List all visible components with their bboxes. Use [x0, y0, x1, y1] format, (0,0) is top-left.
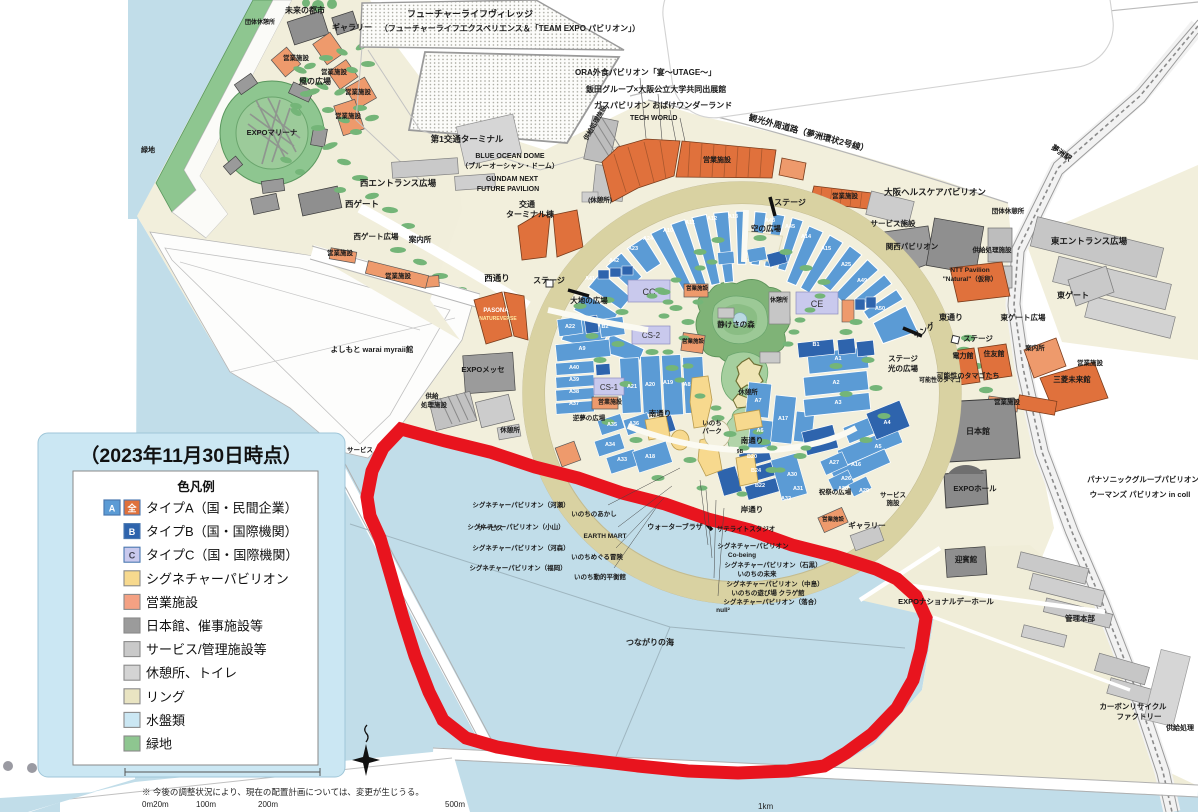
svg-text:水盤類: 水盤類 [146, 713, 185, 728]
svg-text:ギャラリー: ギャラリー [332, 22, 372, 32]
svg-text:シグネチャーパビリオン（福岡）: シグネチャーパビリオン（福岡） [469, 563, 566, 572]
svg-text:（ブルーオーシャン・ドーム）: （ブルーオーシャン・ドーム） [461, 161, 559, 170]
svg-text:ステージ: ステージ [963, 334, 993, 343]
svg-text:B22: B22 [755, 483, 765, 489]
svg-text:東ゲート広場: 東ゲート広場 [1001, 312, 1046, 322]
svg-text:住友館: 住友館 [984, 349, 1005, 358]
svg-text:A31: A31 [793, 486, 803, 492]
svg-text:サービス/管理施設等: サービス/管理施設等 [146, 642, 267, 657]
svg-text:A36: A36 [629, 421, 639, 427]
svg-text:A4: A4 [883, 420, 891, 426]
svg-text:100m: 100m [196, 800, 216, 809]
svg-text:（2023年11月30日時点）: （2023年11月30日時点） [80, 444, 302, 467]
svg-text:500m: 500m [445, 800, 465, 809]
svg-text:シグネチャーパビリオン（河森）: シグネチャーパビリオン（河森） [472, 543, 569, 552]
svg-text:EARTH MART: EARTH MART [584, 533, 627, 540]
svg-text:A9: A9 [578, 346, 585, 352]
svg-text:営業施設: 営業施設 [321, 67, 348, 76]
svg-text:サービス: サービス [347, 445, 373, 454]
svg-text:1km: 1km [758, 802, 773, 811]
svg-text:いのちのあかし: いのちのあかし [571, 509, 617, 518]
svg-text:Co-being: Co-being [728, 552, 756, 559]
svg-text:施設: 施設 [887, 498, 901, 507]
svg-text:ガスパビリオン おばけワンダーランド: ガスパビリオン おばけワンダーランド [594, 100, 732, 110]
svg-text:A39: A39 [569, 377, 579, 383]
svg-text:シグネチャーパビリオン（河瀬）: シグネチャーパビリオン（河瀬） [472, 500, 569, 509]
svg-text:シグネチャーパビリオン: シグネチャーパビリオン [146, 571, 289, 586]
svg-text:ステージ: ステージ [533, 276, 565, 285]
svg-text:EXPOマリーナ: EXPOマリーナ [247, 128, 298, 137]
svg-text:A35: A35 [607, 422, 617, 428]
svg-text:いのち: いのち [702, 419, 722, 427]
svg-text:A26: A26 [841, 476, 851, 482]
svg-text:供給処理施設: 供給処理施設 [972, 245, 1013, 254]
svg-text:A20: A20 [645, 382, 655, 388]
svg-text:飯田グループ×大阪公立大学共同出展館: 飯田グループ×大阪公立大学共同出展館 [585, 84, 726, 94]
svg-text:ギャラリー: ギャラリー [848, 520, 886, 530]
svg-text:B: B [129, 527, 136, 537]
svg-text:A37: A37 [569, 401, 579, 407]
svg-text:管理本部: 管理本部 [1065, 613, 1095, 623]
svg-text:可能性のタマゴ: 可能性のタマゴ [919, 376, 961, 384]
svg-text:A8: A8 [683, 382, 690, 388]
svg-text:営業施設: 営業施設 [335, 111, 362, 120]
svg-text:風の広場: 風の広場 [299, 76, 331, 86]
svg-text:営業施設: 営業施設 [703, 155, 732, 164]
svg-text:営業施設: 営業施設 [822, 515, 845, 523]
svg-text:A42: A42 [609, 258, 619, 264]
svg-text:null²: null² [716, 607, 731, 614]
svg-text:サテライトスタジオ: サテライトスタジオ [717, 524, 776, 533]
svg-text:処理施設: 処理施設 [420, 400, 448, 409]
svg-text:南通り: 南通り [649, 408, 672, 418]
svg-text:シグネチャーパビリオン: シグネチャーパビリオン [717, 541, 789, 550]
svg-text:A3: A3 [834, 400, 841, 406]
svg-text:タイプA（国・民間企業）: タイプA（国・民間企業） [146, 501, 298, 516]
svg-text:大阪ヘルスケアパビリオン: 大阪ヘルスケアパビリオン [884, 187, 986, 197]
svg-text:いのちの遊び場 クラゲ館: いのちの遊び場 クラゲ館 [731, 588, 805, 597]
svg-text:GUNDAM NEXT: GUNDAM NEXT [486, 176, 539, 183]
svg-text:A2: A2 [832, 380, 839, 386]
svg-text:静けさの森: 静けさの森 [717, 319, 755, 329]
svg-text:案内所: 案内所 [408, 234, 432, 244]
svg-text:西ゲート: 西ゲート [345, 199, 379, 209]
svg-text:休憩所、トイレ: 休憩所、トイレ [146, 666, 237, 681]
svg-text:緑地: 緑地 [146, 737, 172, 752]
svg-text:ウォーターブラザ: ウォーターブラザ [647, 522, 703, 531]
svg-text:休憩所: 休憩所 [769, 296, 788, 304]
svg-text:関西パビリオン: 関西パビリオン [886, 241, 939, 251]
svg-text:A32: A32 [781, 496, 791, 502]
svg-text:NATUREVERSE: NATUREVERSE [479, 316, 517, 322]
svg-text:大地の広場: 大地の広場 [570, 295, 608, 305]
svg-text:※ 今後の調整状況により、現在の配置計画については、変更が生: ※ 今後の調整状況により、現在の配置計画については、変更が生じうる。 [142, 787, 424, 797]
svg-text:C: C [129, 551, 136, 561]
svg-text:A50: A50 [875, 306, 885, 312]
svg-text:案内所: 案内所 [1025, 343, 1045, 352]
svg-text:岸通り: 岸通り [741, 504, 764, 514]
svg-text:日本館、催事施設等: 日本館、催事施設等 [146, 619, 263, 634]
svg-text:団体休憩所: 団体休憩所 [245, 18, 275, 26]
svg-text:ステージ: ステージ [774, 198, 806, 207]
svg-text:A6: A6 [756, 428, 763, 434]
svg-text:パーク: パーク [702, 426, 722, 435]
svg-text:PASONA: PASONA [483, 308, 509, 314]
svg-text:BLUE OCEAN DOME: BLUE OCEAN DOME [475, 153, 545, 160]
svg-text:200m: 200m [258, 800, 278, 809]
svg-text:A34: A34 [605, 442, 616, 448]
svg-text:CE: CE [811, 299, 824, 309]
svg-text:東エントランス広場: 東エントランス広場 [1051, 236, 1128, 246]
svg-text:A17: A17 [778, 416, 788, 422]
svg-text:いのち動的平衡館: いのち動的平衡館 [574, 572, 627, 581]
svg-text:NTT Pavilion: NTT Pavilion [950, 267, 989, 274]
svg-text:"Natural"（仮称）: "Natural"（仮称） [943, 274, 998, 283]
svg-text:A18: A18 [645, 454, 655, 460]
svg-text:いのちの未来: いのちの未来 [738, 569, 778, 578]
svg-text:カーボンリサイクル: カーボンリサイクル [1099, 701, 1167, 711]
svg-text:第1交通ターミナル: 第1交通ターミナル [431, 134, 504, 144]
svg-text:営業施設: 営業施設 [994, 397, 1021, 406]
svg-text:9B: 9B [737, 449, 744, 455]
svg-text:休憩所: 休憩所 [499, 425, 520, 434]
svg-text:A28: A28 [838, 486, 848, 492]
svg-text:緑地: 緑地 [141, 145, 155, 154]
svg-text:全: 全 [126, 503, 137, 514]
svg-text:未来の都市: 未来の都市 [284, 5, 325, 15]
svg-text:B1: B1 [812, 342, 819, 348]
svg-text:A7: A7 [754, 398, 761, 404]
svg-text:A41: A41 [585, 276, 595, 282]
svg-text:シグネチャーパビリオン（落合）: シグネチャーパビリオン（落合） [723, 597, 820, 606]
svg-text:営業施設: 営業施設 [598, 398, 623, 406]
svg-text:（フューチャーライフエクスペリエンス＆「TEAM EXPO: （フューチャーライフエクスペリエンス＆「TEAM EXPO パビリオン」） [380, 23, 640, 33]
svg-text:団体休憩所: 団体休憩所 [992, 206, 1025, 215]
svg-text:ファクトリー: ファクトリー [1117, 711, 1162, 721]
svg-text:A21: A21 [627, 384, 637, 390]
svg-text:B2: B2 [601, 324, 608, 330]
svg-text:営業施設: 営業施設 [1077, 358, 1104, 367]
svg-text:日本館: 日本館 [966, 426, 990, 436]
svg-text:ターミナル棟: ターミナル棟 [506, 209, 555, 219]
svg-text:ORA外食パビリオン「宴～UTAGE～」: ORA外食パビリオン「宴～UTAGE～」 [575, 67, 716, 77]
svg-text:逆夢の広場: 逆夢の広場 [573, 413, 606, 422]
svg-text:リング: リング [146, 689, 185, 704]
svg-text:A19: A19 [663, 380, 673, 386]
svg-text:交通: 交通 [519, 199, 535, 209]
svg-text:A33: A33 [617, 457, 627, 463]
svg-text:営業施設: 営業施設 [283, 53, 310, 62]
svg-text:サービス: サービス [880, 490, 906, 499]
svg-text:シグネチャーパビリオン（中島）: シグネチャーパビリオン（中島） [726, 579, 823, 588]
svg-text:A16: A16 [851, 462, 861, 468]
svg-text:A1: A1 [834, 356, 841, 362]
svg-text:EXPOメッセ: EXPOメッセ [461, 365, 504, 374]
svg-text:いのちめぐる冒険: いのちめぐる冒険 [571, 552, 623, 561]
svg-text:EXPOナショナルデーホール: EXPOナショナルデーホール [898, 596, 994, 606]
svg-text:ウーマンズ パビリオン in coll: ウーマンズ パビリオン in coll [1090, 489, 1191, 499]
svg-text:色凡例: 色凡例 [177, 479, 215, 494]
svg-text:よしもと warai myraii館: よしもと warai myraii館 [331, 344, 414, 354]
svg-text:FUTURE PAVILION: FUTURE PAVILION [477, 186, 539, 193]
svg-text:(休憩所): (休憩所) [588, 195, 612, 204]
svg-text:A22: A22 [565, 324, 575, 330]
svg-text:A45: A45 [785, 224, 795, 230]
svg-text:A10: A10 [663, 228, 673, 234]
svg-text:供給: 供給 [425, 391, 440, 400]
svg-text:営業施設: 営業施設 [682, 337, 705, 345]
svg-text:シグネチャーパビリオン（石黒）: シグネチャーパビリオン（石黒） [724, 560, 821, 569]
svg-text:休憩所: 休憩所 [737, 387, 758, 396]
svg-text:A: A [109, 504, 116, 514]
svg-text:A11: A11 [685, 220, 695, 226]
svg-text:A13: A13 [728, 214, 738, 220]
svg-text:フューチャーライフヴィレッジ: フューチャーライフヴィレッジ [407, 8, 533, 19]
svg-text:A30: A30 [787, 472, 797, 478]
svg-text:A24: A24 [643, 236, 654, 242]
svg-text:つながりの海: つながりの海 [626, 637, 674, 647]
svg-text:EXPOホール: EXPOホール [953, 484, 997, 493]
svg-text:B20: B20 [747, 454, 757, 460]
svg-text:供給処理: 供給処理 [1165, 723, 1194, 732]
svg-text:A12: A12 [707, 216, 717, 222]
svg-text:サービス施設: サービス施設 [871, 218, 916, 228]
svg-text:南通り: 南通り [741, 435, 764, 445]
svg-text:東ゲート: 東ゲート [1057, 290, 1089, 300]
svg-text:TECH WORLD: TECH WORLD [630, 115, 677, 122]
svg-text:A29: A29 [859, 488, 869, 494]
svg-text:東通り: 東通り [939, 312, 963, 322]
svg-text:営業施設: 営業施設 [385, 271, 412, 280]
svg-text:迎賓館: 迎賓館 [955, 554, 978, 564]
svg-text:シグネチャーパビリオン（小山）: シグネチャーパビリオン（小山） [467, 522, 564, 531]
svg-text:A14: A14 [801, 234, 812, 240]
svg-text:タイプC（国・国際機関）: タイプC（国・国際機関） [146, 548, 298, 563]
svg-text:0m20m: 0m20m [142, 800, 169, 809]
svg-text:A49: A49 [857, 278, 867, 284]
svg-text:CS-1: CS-1 [600, 383, 619, 392]
svg-text:A15: A15 [821, 246, 831, 252]
svg-text:西ゲート広場: 西ゲート広場 [354, 231, 399, 241]
svg-text:西エントランス広場: 西エントランス広場 [360, 178, 437, 188]
svg-text:A38: A38 [569, 389, 579, 395]
svg-text:営業施設: 営業施設 [327, 248, 354, 257]
svg-text:営業施設: 営業施設 [146, 595, 198, 610]
svg-text:営業施設: 営業施設 [345, 87, 372, 96]
svg-text:営業施設: 営業施設 [686, 284, 709, 292]
svg-text:パナソニックグループパビリオン: パナソニックグループパビリオン [1087, 474, 1198, 484]
svg-text:電力館: 電力館 [953, 351, 974, 360]
svg-text:三菱未来館: 三菱未来館 [1053, 374, 1091, 384]
svg-text:A25: A25 [841, 262, 851, 268]
svg-text:光の広場: 光の広場 [887, 363, 918, 373]
svg-text:ステージ: ステージ [888, 354, 918, 363]
svg-text:空の広場: 空の広場 [751, 223, 781, 233]
svg-text:A23: A23 [628, 246, 638, 252]
svg-text:A27: A27 [829, 460, 839, 466]
svg-text:A40: A40 [569, 365, 579, 371]
svg-text:西通り: 西通り [484, 273, 510, 283]
svg-text:営業施設: 営業施設 [832, 191, 859, 200]
svg-text:タイプB（国・国際機関）: タイプB（国・国際機関） [146, 524, 298, 539]
svg-text:B24: B24 [751, 468, 762, 474]
svg-text:A5: A5 [874, 444, 881, 450]
svg-text:A43: A43 [765, 218, 775, 224]
